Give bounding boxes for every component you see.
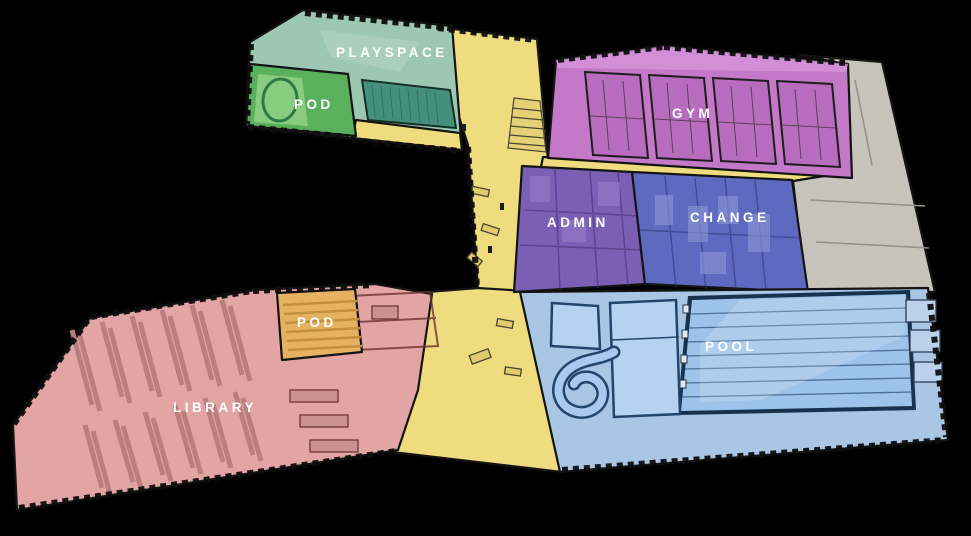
zone-playspace (246, 10, 462, 150)
label-pod-lower: POD (297, 315, 337, 330)
label-change: CHANGE (690, 210, 770, 225)
zone-change (632, 172, 808, 292)
label-library: LIBRARY (173, 400, 257, 415)
learner-pool (551, 303, 600, 349)
floor-plan-canvas: PLAYSPACE POD GYM ADMIN CHANGE POOL POD … (0, 0, 971, 536)
spine-stairs (508, 98, 546, 152)
label-playspace: PLAYSPACE (336, 45, 448, 60)
label-admin: ADMIN (547, 215, 609, 230)
leisure-pool (610, 300, 680, 417)
label-pool: POOL (705, 339, 757, 354)
floor-plan-svg: PLAYSPACE POD GYM ADMIN CHANGE POOL POD … (0, 0, 971, 536)
label-gym: GYM (672, 106, 713, 121)
label-pod-upper: POD (294, 97, 334, 112)
